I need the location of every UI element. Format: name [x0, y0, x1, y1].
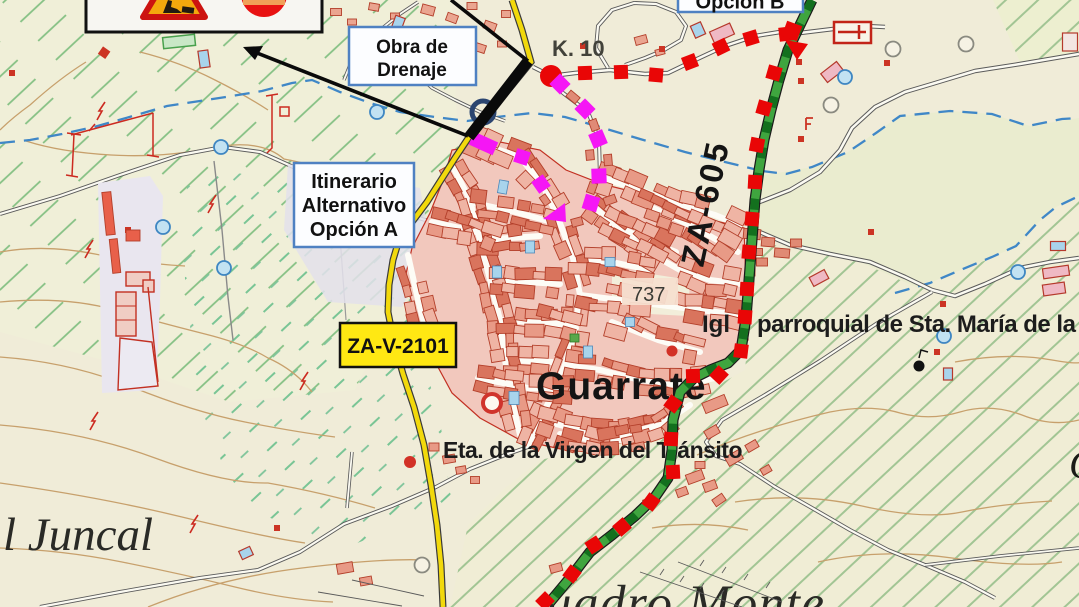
svg-text:Alternativo: Alternativo	[302, 195, 406, 217]
svg-text:Obra de: Obra de	[376, 37, 448, 58]
svg-text:C: C	[1069, 442, 1079, 487]
svg-text:Itinerario: Itinerario	[311, 171, 397, 193]
svg-text:Eta. de la Virgen del Tránsito: Eta. de la Virgen del Tránsito	[443, 437, 742, 463]
svg-text:Opción B: Opción B	[696, 0, 785, 14]
svg-text:Drenaje: Drenaje	[377, 60, 447, 81]
svg-text:ZA-V-2101: ZA-V-2101	[347, 335, 449, 358]
svg-text:K. 10: K. 10	[552, 36, 605, 61]
svg-text:l Juncal: l Juncal	[3, 509, 153, 561]
svg-text:Igl: Igl	[702, 311, 730, 338]
svg-text:737: 737	[632, 284, 665, 306]
svg-text:Opción A: Opción A	[310, 219, 398, 241]
svg-text:uadro Monte: uadro Monte	[546, 576, 826, 607]
svg-text:parroquial de Sta. María de la: parroquial de Sta. María de la	[757, 311, 1077, 338]
